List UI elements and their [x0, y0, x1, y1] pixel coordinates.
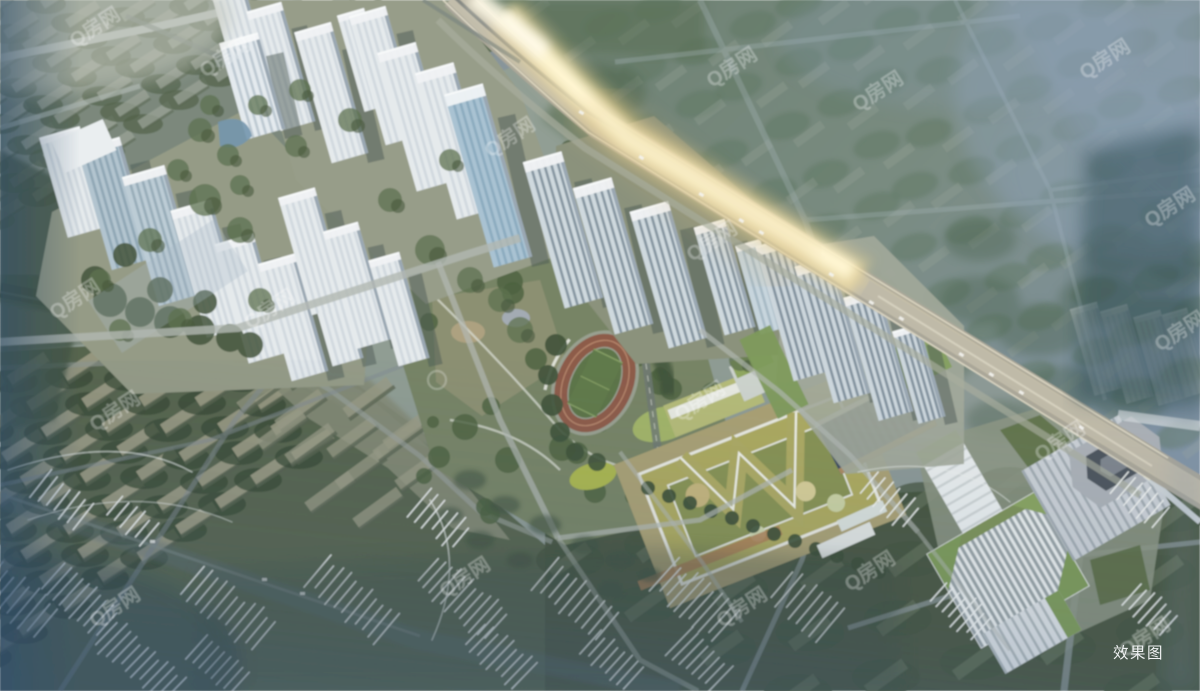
svg-text:效果图: 效果图 — [1113, 644, 1164, 662]
